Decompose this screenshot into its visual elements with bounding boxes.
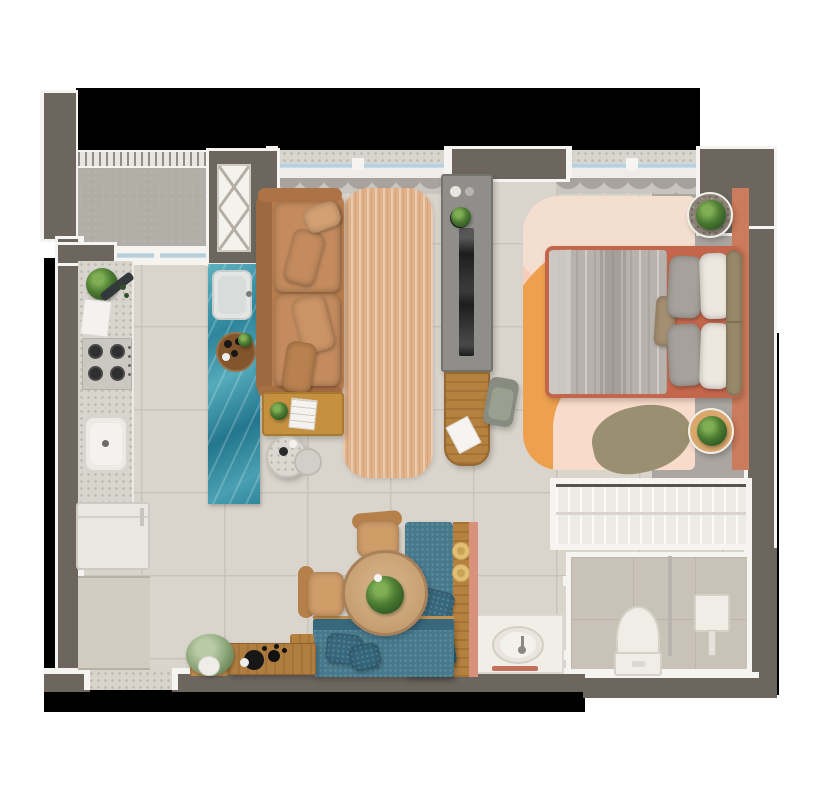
tray-plant-sprig bbox=[238, 333, 252, 347]
sideboard-dot-2 bbox=[274, 644, 279, 649]
ac-unit-icon bbox=[217, 164, 251, 252]
bed-pillow-gray-2 bbox=[666, 323, 703, 387]
entry-door-threshold bbox=[88, 670, 174, 690]
balcony-floor bbox=[78, 168, 210, 250]
exterior-void-top bbox=[76, 88, 700, 152]
refrigerator-door-line bbox=[78, 516, 148, 518]
coffee-cup-white bbox=[222, 353, 230, 361]
sofa-backrest bbox=[256, 194, 272, 394]
bed-headboard bbox=[726, 250, 742, 396]
bathroom-door-jamb-top bbox=[563, 576, 571, 586]
centerpiece-flower bbox=[374, 574, 382, 582]
coffee-table-book bbox=[289, 398, 318, 431]
kitchen-sink-drain bbox=[102, 440, 109, 447]
vanity-faucet-base bbox=[518, 646, 526, 654]
bed-sheet-fold bbox=[549, 250, 571, 395]
jute-rug bbox=[343, 188, 433, 478]
balcony-railing bbox=[78, 150, 220, 168]
sideboard-dot-1 bbox=[262, 646, 267, 651]
shelf-decor-bowl bbox=[450, 186, 461, 197]
sideboard-dot-3 bbox=[282, 648, 287, 653]
vanity-towel bbox=[492, 666, 538, 671]
cooktop-knob-1 bbox=[128, 346, 131, 349]
bed-throw-fold bbox=[600, 250, 626, 394]
burner-4 bbox=[110, 366, 125, 381]
coffee-cup-1 bbox=[224, 340, 232, 348]
oil-bottle bbox=[120, 284, 126, 290]
shower-column-stem bbox=[708, 630, 716, 656]
side-table-small bbox=[294, 448, 322, 476]
dining-centerpiece-plant bbox=[366, 576, 404, 614]
kitchen-towels bbox=[80, 298, 112, 337]
toilet-flush-button bbox=[632, 661, 645, 667]
shower-column-plate bbox=[694, 594, 730, 632]
cooktop-knob-3 bbox=[128, 364, 131, 367]
burner-2 bbox=[110, 344, 125, 359]
closet-hanging-rod bbox=[556, 512, 746, 515]
coffee-cup-3 bbox=[231, 350, 238, 357]
bed-pillow-gray-1 bbox=[666, 255, 703, 319]
straw-hat-2-crown bbox=[457, 569, 465, 577]
cooktop-knob-2 bbox=[128, 355, 131, 358]
entry-door-jamb-right bbox=[172, 668, 178, 690]
bedroom-curtain bbox=[556, 178, 702, 194]
side-table-dish bbox=[289, 440, 297, 448]
burner-1 bbox=[88, 344, 103, 359]
nightstand-bottom-plant bbox=[697, 416, 727, 446]
island-sink-basin bbox=[218, 276, 246, 314]
sideboard-mug bbox=[240, 658, 249, 667]
wall-left-arm bbox=[44, 93, 76, 239]
entry-plant-pot bbox=[198, 656, 220, 676]
bathroom-door-jamb-bottom bbox=[563, 650, 571, 660]
tv-screen bbox=[459, 228, 474, 356]
refrigerator-handle bbox=[140, 508, 144, 526]
bed-headboard-split bbox=[726, 321, 742, 323]
wall-bath-bottom bbox=[583, 678, 759, 698]
wall-left bbox=[58, 239, 78, 683]
entry-door-jamb-left bbox=[84, 668, 90, 690]
bedroom-window-mullion bbox=[626, 158, 638, 170]
floor-plan bbox=[0, 0, 817, 792]
refrigerator bbox=[76, 502, 150, 570]
burner-3 bbox=[88, 366, 103, 381]
straw-hat-1-crown bbox=[457, 547, 465, 555]
side-table-cup bbox=[279, 447, 288, 456]
coffee-table-plant bbox=[270, 402, 288, 420]
vanity-sink-basin bbox=[500, 632, 536, 658]
cooktop-knob-4 bbox=[128, 373, 131, 376]
shower-glass-partition bbox=[668, 556, 672, 656]
balcony-door-mullion bbox=[154, 249, 160, 262]
sideboard-bowl bbox=[268, 650, 280, 662]
nightstand-top-plant bbox=[696, 200, 726, 230]
dining-chair-left-seat bbox=[308, 572, 344, 616]
shelf-decor-vase bbox=[465, 187, 474, 196]
island-faucet bbox=[246, 291, 252, 297]
living-window-mullion bbox=[352, 158, 364, 170]
shelf-plant bbox=[451, 207, 471, 227]
spice-jar bbox=[124, 293, 129, 298]
banquette-salmon-strip bbox=[469, 522, 478, 677]
entry-mat bbox=[78, 576, 150, 670]
closet-back-edge bbox=[556, 484, 746, 487]
exterior-void-bottom bbox=[44, 690, 585, 712]
